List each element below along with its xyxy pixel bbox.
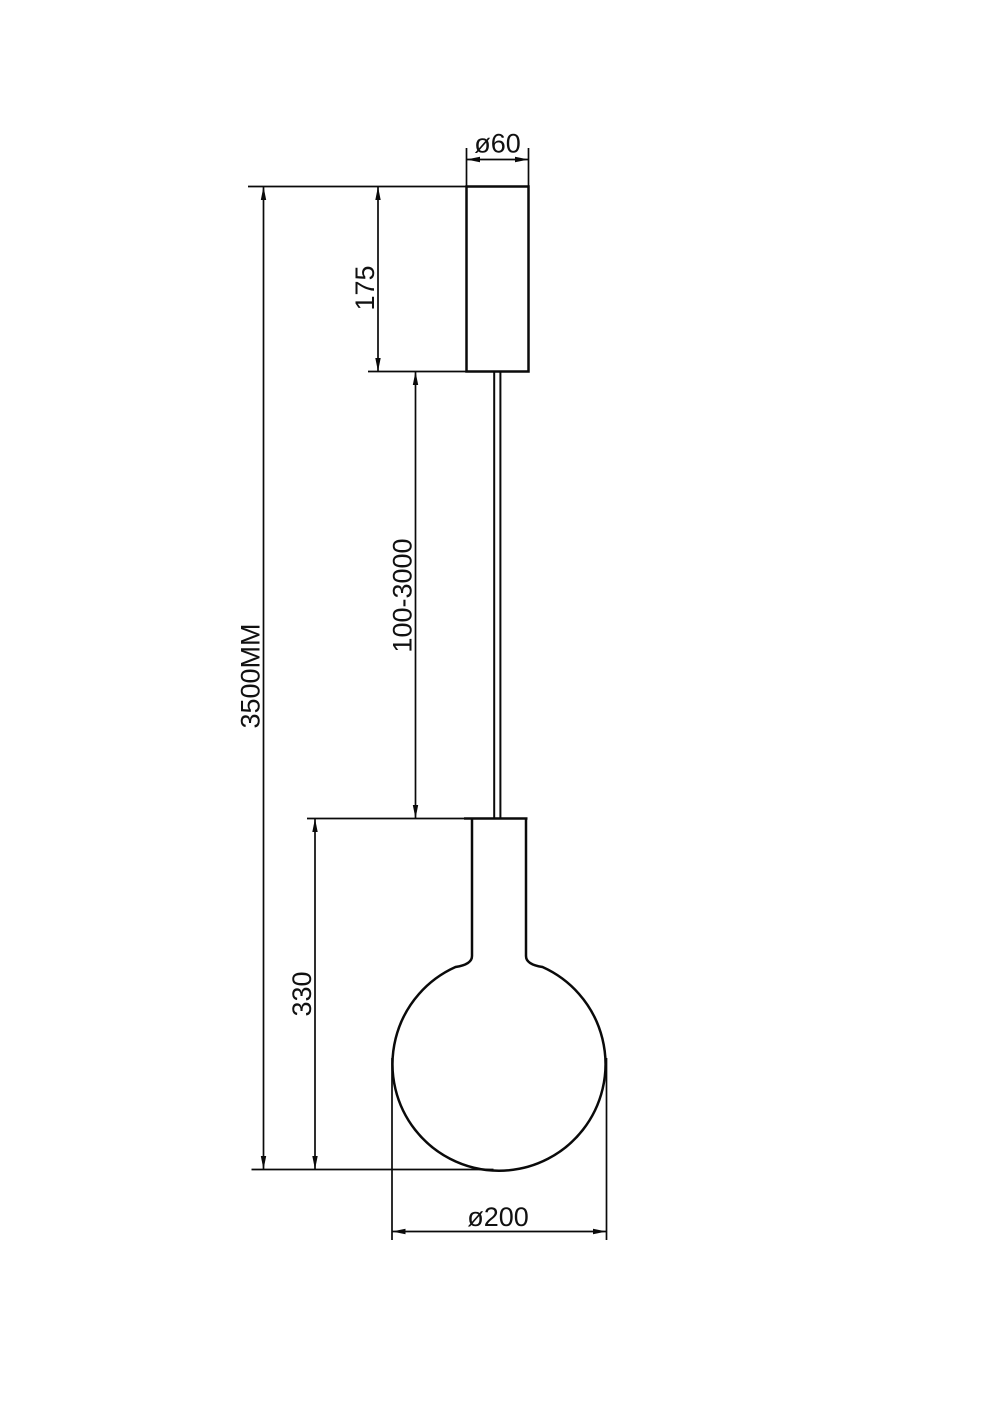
bulb-globe-outline [393, 819, 606, 1171]
dim-label-overall-height: 3500MM [236, 623, 266, 728]
drawing-canvas: ø60 175 100-3000 3500MM 330 ø200 [0, 0, 992, 1403]
dim-label-canopy-diameter: ø60 [474, 129, 521, 159]
pendant-lamp-dimension-drawing: ø60 175 100-3000 3500MM 330 ø200 [0, 0, 992, 1403]
dim-label-lamp-body-height: 330 [287, 971, 317, 1016]
dimension-lines [264, 160, 607, 1232]
dim-label-globe-diameter: ø200 [467, 1202, 529, 1232]
dimension-labels: ø60 175 100-3000 3500MM 330 ø200 [236, 129, 529, 1233]
extension-lines [248, 148, 607, 1240]
dim-label-canopy-height: 175 [350, 265, 380, 310]
lamp-outline [393, 187, 606, 1171]
dim-label-cable-length: 100-3000 [388, 538, 418, 652]
canopy-outline [467, 187, 529, 372]
